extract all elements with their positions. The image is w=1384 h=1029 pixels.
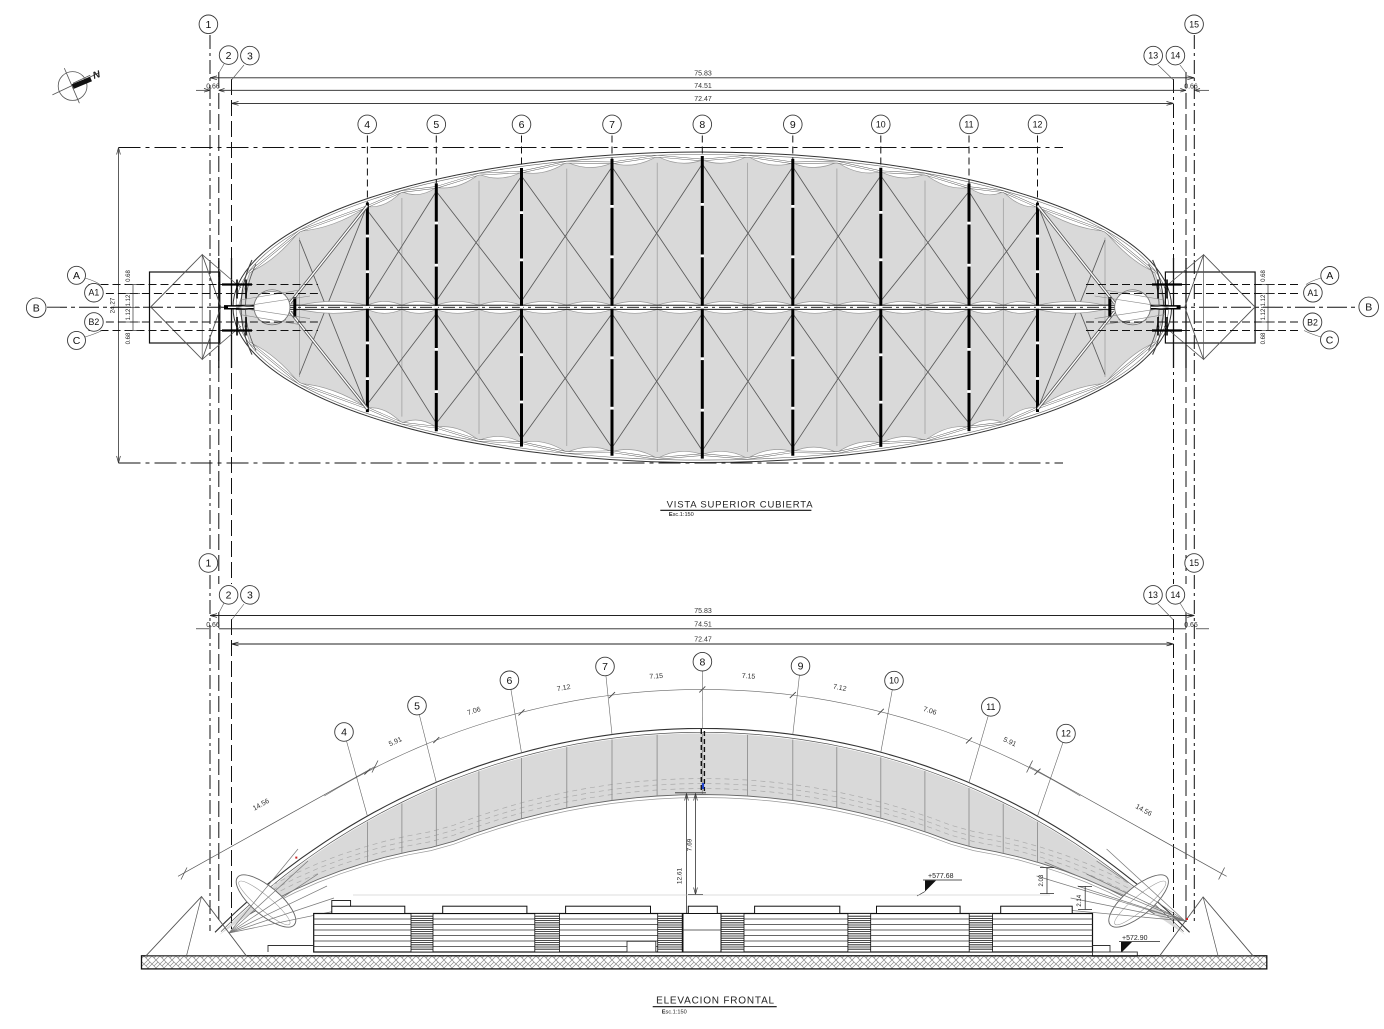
svg-text:14: 14 [1171,590,1181,600]
svg-text:8: 8 [699,119,705,131]
svg-text:0.68: 0.68 [126,270,132,282]
svg-text:12.61: 12.61 [677,867,684,884]
svg-text:13: 13 [1148,590,1158,600]
svg-text:+577.68: +577.68 [928,873,954,880]
svg-text:Esc.1:150: Esc.1:150 [662,1010,687,1016]
svg-text:3: 3 [247,590,253,602]
svg-text:12: 12 [1061,729,1071,739]
svg-text:ELEVACION FRONTAL: ELEVACION FRONTAL [656,996,775,1007]
svg-text:4: 4 [341,727,347,739]
svg-text:9: 9 [798,661,804,673]
svg-text:2: 2 [226,50,232,62]
svg-text:1.12: 1.12 [1261,294,1267,306]
svg-text:0.66: 0.66 [1184,622,1198,629]
svg-text:75.83: 75.83 [694,71,712,78]
svg-text:1.12: 1.12 [126,308,132,320]
svg-text:VISTA SUPERIOR CUBIERTA: VISTA SUPERIOR CUBIERTA [667,500,814,511]
svg-text:C: C [73,335,81,347]
svg-text:15: 15 [1189,558,1199,568]
svg-text:1.12: 1.12 [126,294,132,306]
svg-text:5: 5 [414,700,420,712]
svg-text:2.03: 2.03 [1039,874,1045,886]
svg-text:B: B [1365,302,1372,314]
svg-text:1: 1 [205,19,211,31]
svg-text:7: 7 [609,119,615,131]
svg-text:74.51: 74.51 [694,83,712,90]
svg-text:Esc.1:150: Esc.1:150 [669,512,694,518]
svg-text:C: C [1326,335,1334,347]
svg-text:72.47: 72.47 [694,96,712,103]
svg-text:2: 2 [226,590,232,602]
svg-text:0.68: 0.68 [126,332,132,344]
svg-text:12: 12 [1033,119,1043,129]
svg-text:9: 9 [790,119,796,131]
svg-text:1.12: 1.12 [1261,308,1267,320]
svg-text:7.15: 7.15 [741,673,755,681]
svg-text:74.51: 74.51 [694,622,712,629]
svg-text:24.27: 24.27 [110,297,117,313]
svg-text:8: 8 [699,656,705,668]
svg-text:B2: B2 [89,317,100,327]
svg-text:A: A [73,270,80,282]
svg-text:7: 7 [602,661,608,673]
svg-text:11: 11 [986,702,995,712]
svg-text:10: 10 [889,676,899,686]
svg-text:A1: A1 [1308,288,1319,298]
svg-text:6: 6 [519,119,525,131]
svg-text:4: 4 [364,119,370,131]
svg-text:3: 3 [247,50,253,62]
svg-text:A1: A1 [89,288,100,298]
svg-text:B2: B2 [1307,317,1318,327]
svg-text:75.83: 75.83 [694,608,712,615]
svg-text:6: 6 [506,675,512,687]
svg-text:15: 15 [1189,19,1199,29]
svg-text:7.69: 7.69 [686,838,693,851]
svg-text:0.68: 0.68 [1261,270,1267,282]
svg-text:11: 11 [964,119,973,129]
svg-text:A: A [1326,270,1333,282]
svg-text:7.15: 7.15 [649,673,663,681]
svg-text:10: 10 [876,119,886,129]
svg-text:B: B [33,302,40,314]
svg-text:0.68: 0.68 [1261,332,1267,344]
svg-text:5: 5 [433,119,439,131]
svg-text:14: 14 [1171,51,1181,61]
svg-text:+572.90: +572.90 [1122,935,1148,942]
svg-text:72.47: 72.47 [694,637,712,644]
svg-text:2.14: 2.14 [1077,894,1083,906]
svg-text:0.66: 0.66 [206,622,220,629]
svg-text:1: 1 [205,558,211,570]
svg-text:13: 13 [1148,51,1158,61]
